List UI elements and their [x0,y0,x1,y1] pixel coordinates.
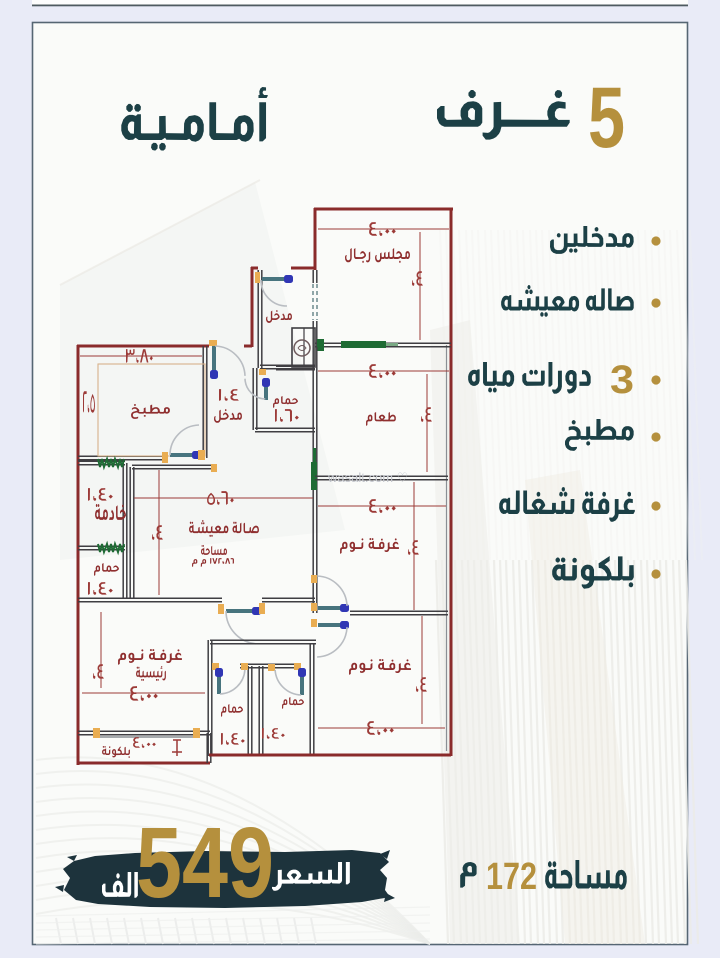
svg-text:wasalt.com ♡: wasalt.com ♡ [327,470,408,485]
svg-text:5: 5 [588,70,625,166]
svg-text:549: 549 [136,807,274,919]
svg-text:172: 172 [486,856,537,898]
svg-text:3: 3 [610,358,634,402]
